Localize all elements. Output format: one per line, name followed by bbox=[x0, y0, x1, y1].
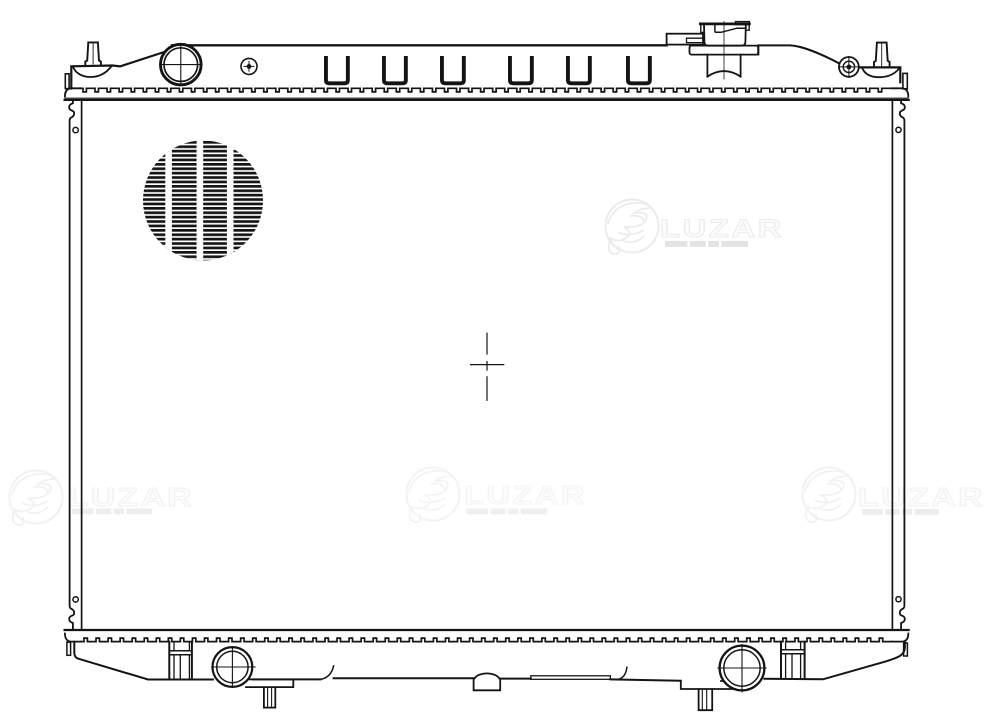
svg-text:LUZAR: LUZAR bbox=[68, 482, 194, 512]
svg-text:LUZAR: LUZAR bbox=[660, 215, 784, 243]
svg-text:LUZAR: LUZAR bbox=[858, 482, 985, 512]
svg-text:LUZAR: LUZAR bbox=[464, 480, 587, 510]
